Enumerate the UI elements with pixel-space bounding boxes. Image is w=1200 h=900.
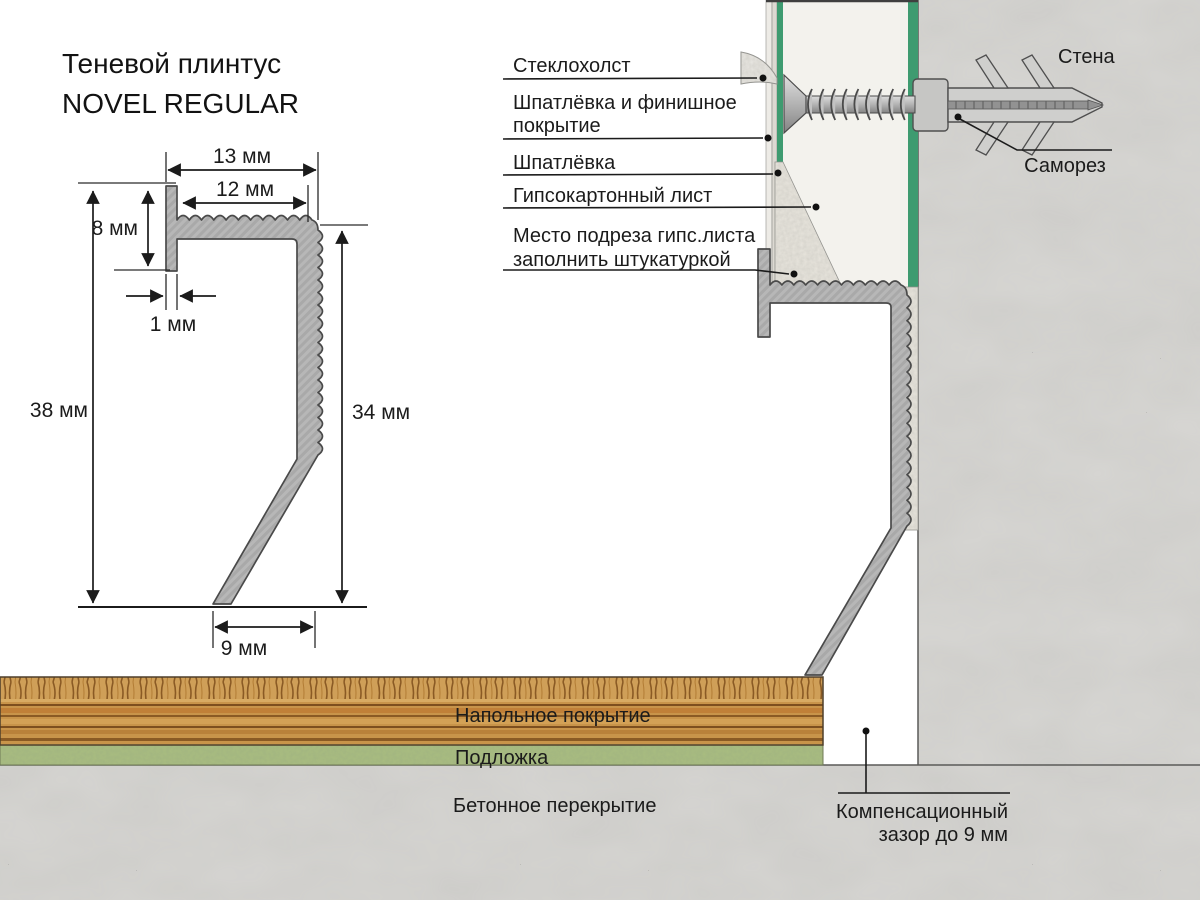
putty-leader	[503, 174, 773, 175]
page-title-line1: Теневой плинтус	[62, 48, 281, 79]
screw-threads	[808, 89, 905, 120]
screw-label: Саморез	[1024, 155, 1106, 177]
screw-leader-dot	[955, 114, 962, 121]
cut-note-leader	[503, 270, 789, 274]
dim-13-label: 13 мм	[213, 145, 271, 168]
diagram-canvas: 13 мм 12 мм 8 мм 1 мм 38 мм 34 мм 9 мм С…	[0, 0, 1200, 900]
drywall-label: Гипсокартонный лист	[513, 185, 712, 207]
fiberglass-leader	[503, 78, 757, 79]
title-block: Теневой плинтус NOVEL REGULAR	[62, 48, 299, 119]
gap-label-2: зазор до 9 мм	[879, 824, 1008, 846]
dim-9-label: 9 мм	[221, 637, 267, 660]
wall-label: Стена	[1058, 46, 1116, 68]
fiberglass-leader-dot	[760, 75, 767, 82]
dim-12-label: 12 мм	[216, 178, 274, 201]
cut-note-label-2: заполнить штукатуркой	[513, 249, 731, 271]
novel-plinth-profile-installed	[758, 249, 911, 675]
novel-plinth-profile-drawing	[166, 186, 323, 604]
putty-finish-leader-dot	[765, 135, 772, 142]
gap-label-1: Компенсационный	[836, 801, 1008, 823]
finish-coat-layer	[766, 0, 772, 287]
fiberglass-label: Стеклохолст	[513, 55, 631, 77]
dim-1-label: 1 мм	[150, 313, 196, 336]
dim-8-label: 8 мм	[92, 217, 138, 240]
drywall-face-green-right	[908, 0, 918, 287]
anchor-collar	[913, 79, 948, 131]
drywall-leader-dot	[813, 204, 820, 211]
putty-finish-leader	[503, 138, 763, 139]
putty-label: Шпатлёвка	[513, 152, 616, 174]
drywall-leader	[503, 207, 811, 208]
gap-leader-dot	[863, 728, 870, 735]
screw-rod-in-anchor	[948, 101, 1088, 109]
slab-label: Бетонное перекрытие	[453, 795, 656, 817]
floor-core-layer	[0, 699, 823, 745]
putty-leader-dot	[775, 170, 782, 177]
putty-finish-label-2: покрытие	[513, 115, 601, 137]
drywall-face-green-left	[777, 0, 783, 162]
dim-34-label: 34 мм	[352, 401, 410, 424]
slab-texture	[0, 765, 1200, 900]
floor-underlay	[0, 745, 823, 765]
concrete-slab	[0, 765, 1200, 900]
underlay-label: Подложка	[455, 747, 549, 769]
cut-note-label-1: Место подреза гипс.листа	[513, 225, 756, 247]
profile-dimension-drawing: 13 мм 12 мм 8 мм 1 мм 38 мм 34 мм 9 мм	[30, 145, 410, 660]
putty-finish-label-1: Шпатлёвка и финишное	[513, 92, 737, 114]
floor-covering-label: Напольное покрытие	[455, 705, 651, 727]
floor-top-layer	[0, 677, 823, 699]
dim-38-label: 38 мм	[30, 399, 88, 422]
underlay-texture	[0, 745, 823, 765]
page-title-line2: NOVEL REGULAR	[62, 88, 299, 119]
cut-note-leader-dot	[791, 271, 798, 278]
floor-covering	[0, 677, 823, 745]
diagram-page: 13 мм 12 мм 8 мм 1 мм 38 мм 34 мм 9 мм С…	[0, 0, 1200, 900]
